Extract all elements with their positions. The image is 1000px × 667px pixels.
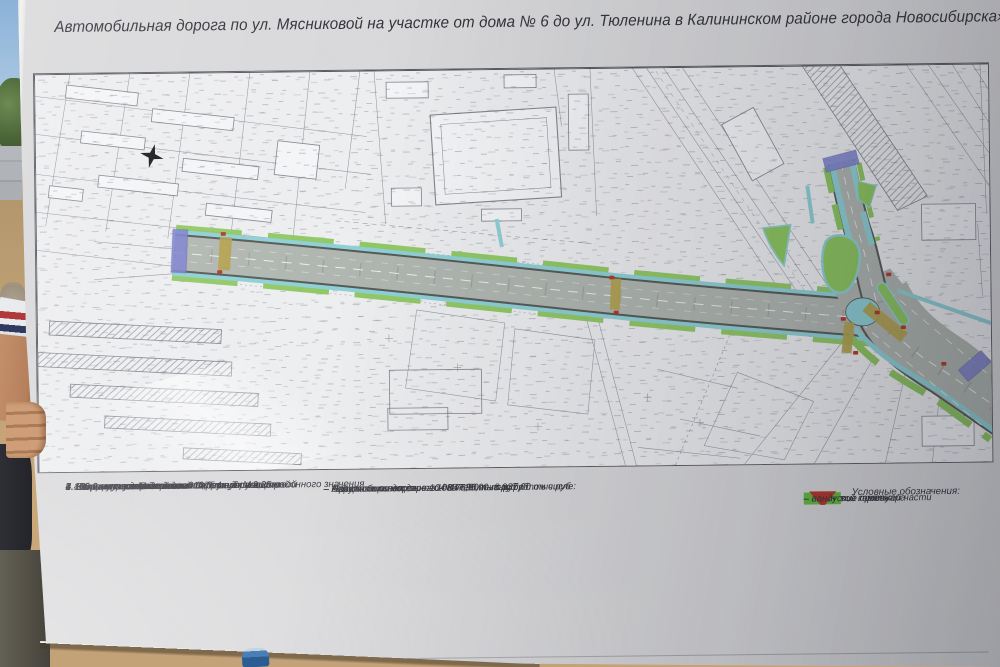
- person-torso: [0, 444, 32, 558]
- map-legend: Условные обозначения: – бортовой камень …: [804, 485, 1000, 487]
- photo-scene: Автомобильная дорога по ул. Мясниковой н…: [0, 0, 1000, 667]
- site-plan-map: [33, 62, 993, 473]
- information-board: Автомобильная дорога по ул. Мясниковой н…: [0, 0, 1000, 667]
- cost-line: – Наружное освещение – 10 175,00 тыс.руб: [324, 475, 519, 501]
- background-building: [0, 146, 22, 200]
- board-content: Автомобильная дорога по ул. Мясниковой н…: [0, 0, 1000, 667]
- person-hand: [6, 402, 46, 458]
- board-title: Автомобильная дорога по ул. Мясниковой н…: [54, 9, 964, 37]
- spec-line: 7. Ширина пешеходной части тротуара 2,25…: [66, 477, 281, 495]
- costs-list: Общая стоимость – 104 847,00 тыс.руб в т…: [324, 474, 574, 477]
- signpost-cap: [242, 647, 270, 667]
- legend-label: – пандус: [804, 492, 842, 503]
